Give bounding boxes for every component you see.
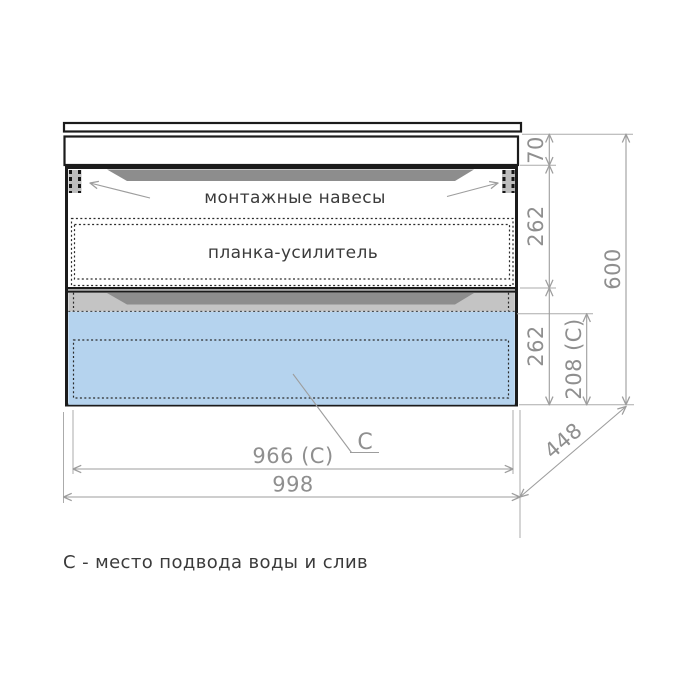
lower-handle-groove <box>107 293 474 305</box>
countertop-panel <box>64 123 521 132</box>
drawing-canvas: монтажные навесы планка-усилитель C <box>0 0 700 700</box>
dim-text-262-upper: 262 <box>524 205 548 247</box>
dim-text-262-lower: 262 <box>524 325 548 367</box>
water-connection-area <box>68 312 515 405</box>
vertical-dimensions: 70 262 262 208 (C) 600 <box>517 134 634 405</box>
footnote-text: С - место подвода воды и слив <box>63 552 368 573</box>
front-apron-panel <box>65 137 519 166</box>
upper-handle-groove <box>107 170 474 182</box>
vanity-dimension-drawing: монтажные навесы планка-усилитель C <box>0 0 700 700</box>
lower-drawer: C <box>68 293 515 455</box>
dim-text-208: 208 (C) <box>562 318 586 399</box>
right-mounting-hanger <box>502 170 515 193</box>
dim-text-448: 448 <box>540 418 587 463</box>
reinforcement-plank-label: планка-усилитель <box>208 243 378 263</box>
dim-text-966: 966 (C) <box>252 444 333 468</box>
connection-marker-label: C <box>357 430 372 455</box>
horizontal-dimensions: 966 (C) 998 448 <box>64 407 627 539</box>
dim-text-70: 70 <box>524 136 548 164</box>
left-mounting-hanger <box>69 170 82 193</box>
dim-text-998: 998 <box>272 473 314 497</box>
mounting-hangers-label: монтажные навесы <box>204 188 386 208</box>
dim-text-600: 600 <box>601 248 625 290</box>
